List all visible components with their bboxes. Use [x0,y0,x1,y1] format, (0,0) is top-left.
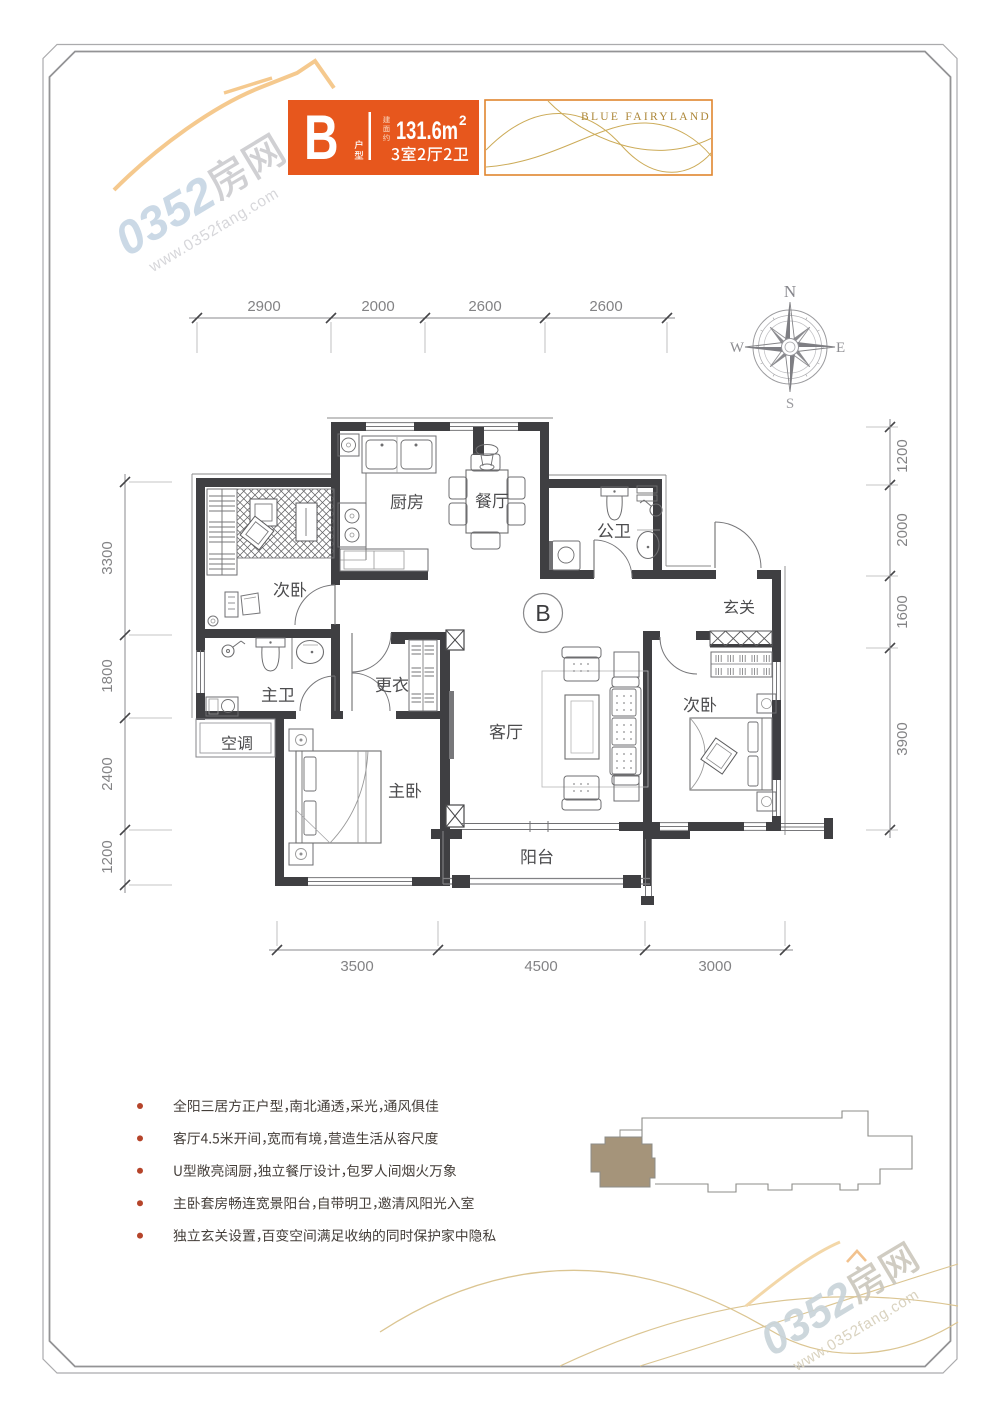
svg-text:1200: 1200 [894,439,911,472]
svg-text:3900: 3900 [894,722,911,755]
svg-text:4500: 4500 [524,958,557,975]
svg-text:2000: 2000 [361,298,394,315]
svg-text:W: W [730,340,745,356]
svg-text:3500: 3500 [340,958,373,975]
svg-text:N: N [784,282,796,301]
svg-text:2900: 2900 [247,298,280,315]
svg-text:E: E [836,340,845,356]
svg-text:1600: 1600 [894,595,911,628]
svg-text:3300: 3300 [99,541,116,574]
svg-text:1200: 1200 [99,840,116,873]
svg-text:B: B [535,600,550,626]
svg-text:2600: 2600 [468,298,501,315]
svg-text:B: B [304,102,339,173]
svg-text:BLUE FAIRYLAND: BLUE FAIRYLAND [581,111,711,123]
svg-text:3000: 3000 [698,958,731,975]
svg-text:2600: 2600 [589,298,622,315]
svg-text:1800: 1800 [99,659,116,692]
svg-text:2: 2 [459,113,467,128]
svg-text:2000: 2000 [894,513,911,546]
svg-text:2400: 2400 [99,757,116,790]
svg-text:S: S [786,396,794,412]
svg-text:131.6m: 131.6m [396,117,458,145]
